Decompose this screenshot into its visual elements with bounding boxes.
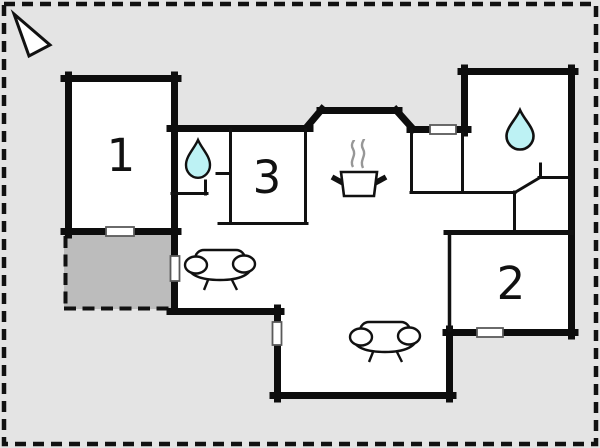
window-marker [273,322,282,345]
window-marker [477,328,503,337]
window-marker [430,125,456,134]
room-3-label: 3 [253,151,282,204]
window-marker [171,256,180,281]
window-marker [106,227,134,236]
room-1-label: 1 [107,129,136,182]
floor-plan: 1 2 3 [0,0,600,448]
pot-body [341,172,377,196]
floor-plan-canvas: 1 2 3 [0,0,600,448]
terrace-floor [64,234,173,309]
terrace [64,234,173,309]
room-2-label: 2 [497,257,526,310]
